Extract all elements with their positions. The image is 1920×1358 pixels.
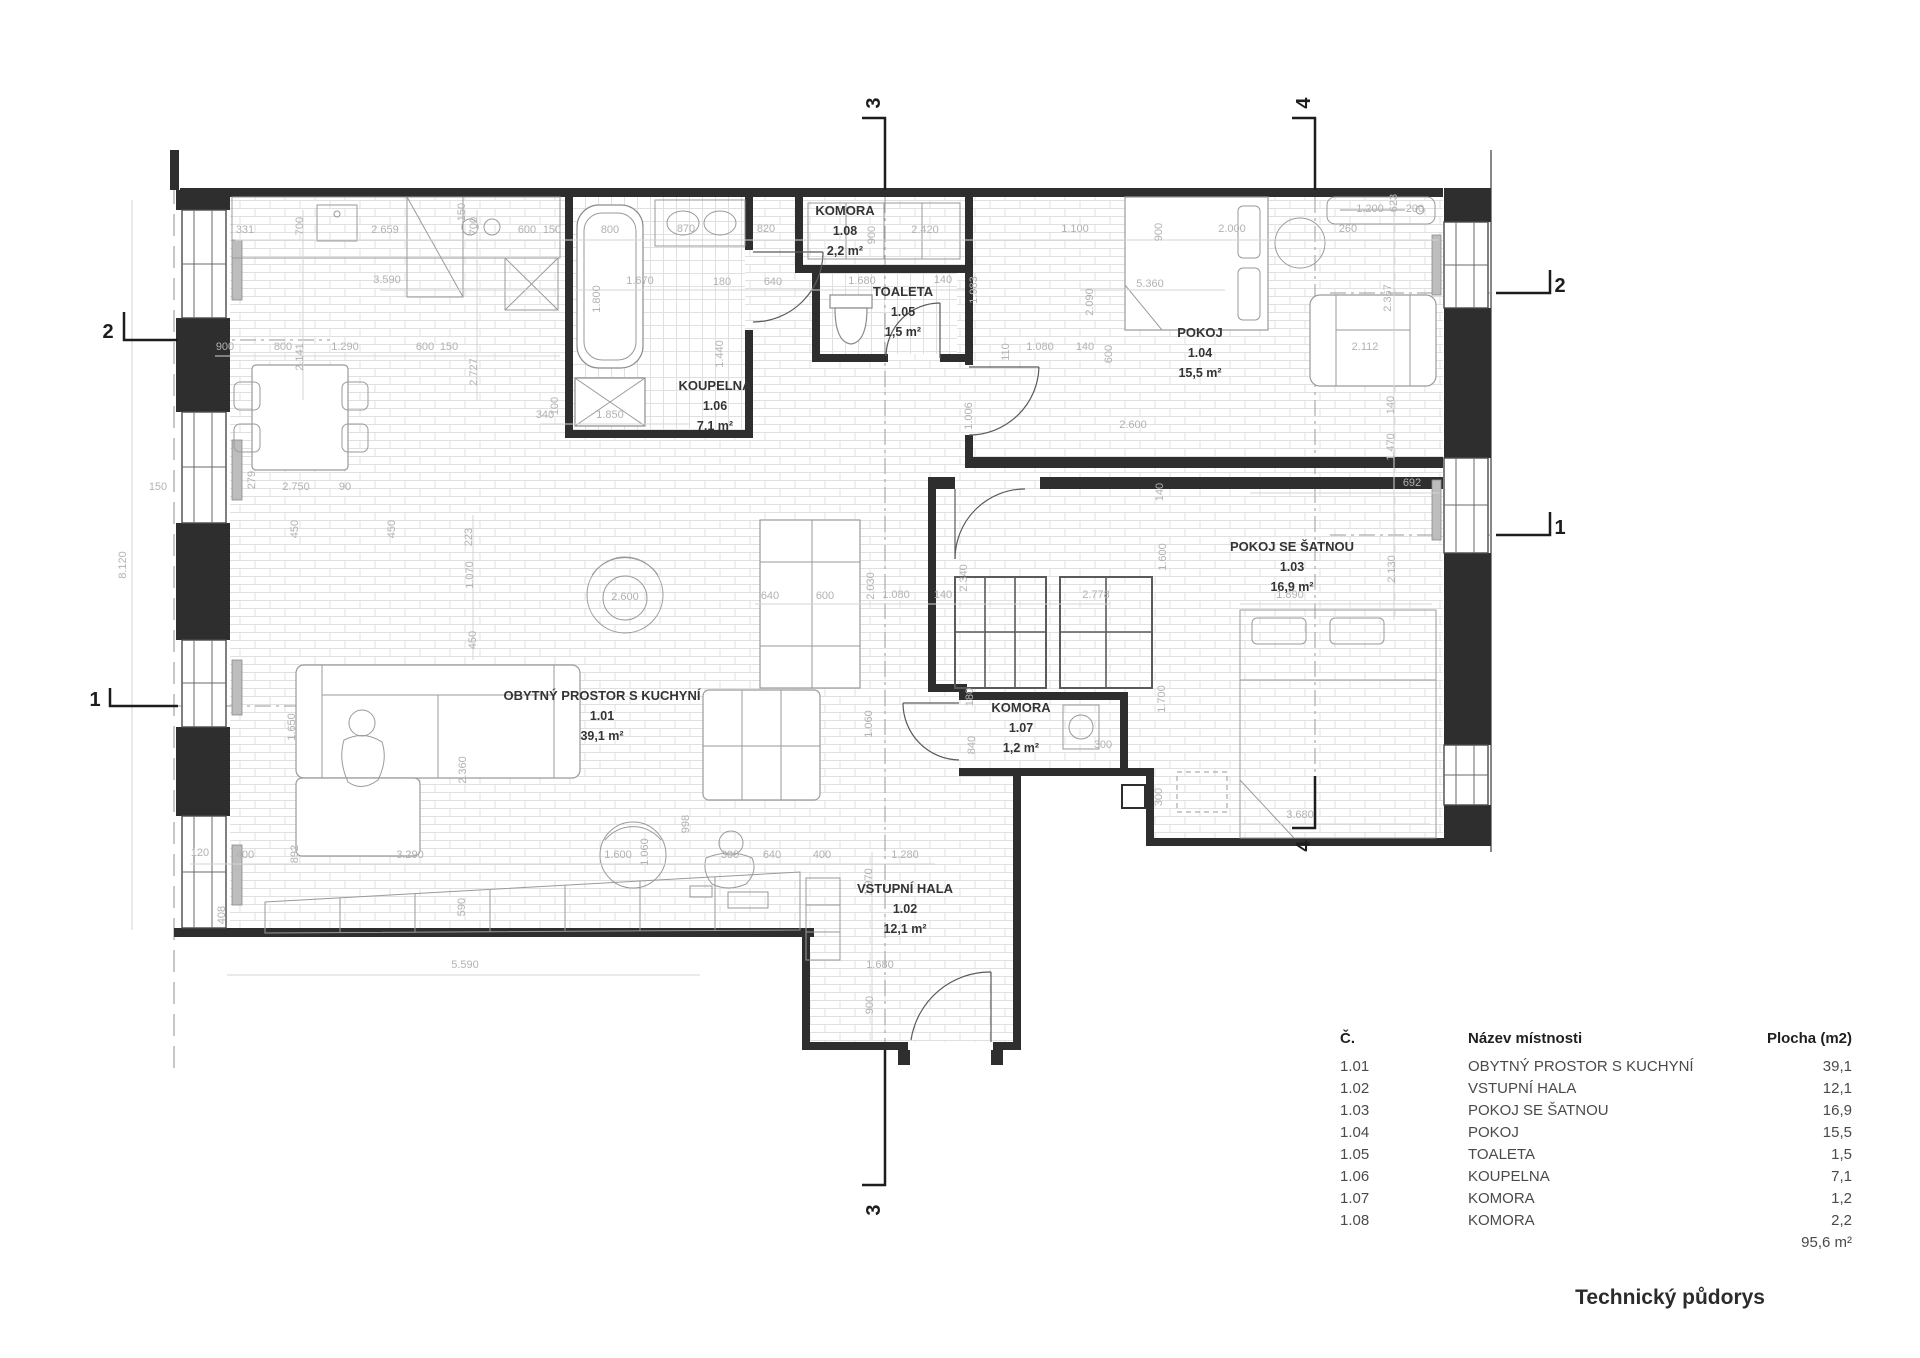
dimension-label: 600 [1103, 345, 1115, 363]
room-label-number: 1.08 [833, 224, 857, 238]
legend-row: 1.05TOALETA1,5 [1340, 1143, 1852, 1165]
dimension-label: 1.700 [1156, 685, 1168, 713]
window-right-3 [1444, 745, 1488, 805]
room-label-name: KOMORA [815, 203, 875, 218]
section-marker-label: 2 [1554, 275, 1565, 297]
dimension-label: 2.778 [1082, 589, 1110, 601]
dimension-label: 150 [440, 341, 458, 353]
dimension-label: 1.070 [464, 561, 476, 589]
dimension-label: 600 [518, 224, 536, 236]
dimension-label: 840 [966, 736, 978, 754]
legend-cell-area: 39,1 [1747, 1055, 1852, 1077]
legend-total-area: 95,6 m² [1747, 1231, 1852, 1253]
dimension-label: 2.600 [1119, 419, 1147, 431]
dimension-label: 260 [1339, 223, 1357, 235]
dimension-label: 1.100 [1061, 223, 1089, 235]
legend-cell-area: 1,5 [1747, 1143, 1852, 1165]
legend-cell-num: 1.06 [1340, 1165, 1468, 1187]
dimension-label: 5.590 [451, 959, 479, 971]
dimension-label: 3.590 [373, 274, 401, 286]
window-right-1 [1444, 222, 1488, 308]
dimension-label: 600 [816, 590, 834, 602]
dimension-label: 700 [294, 217, 306, 235]
dimension-label: 590 [456, 898, 468, 916]
dimension-label: 900 [216, 341, 234, 353]
window-left-2 [182, 412, 226, 523]
room-label-number: 1.01 [590, 709, 614, 723]
legend-cell-num: 1.03 [1340, 1099, 1468, 1121]
dimension-label: 800 [601, 224, 619, 236]
room-label-number: 1.05 [891, 305, 915, 319]
legend-cell-area: 16,9 [1747, 1099, 1852, 1121]
dimension-label: 1.800 [591, 285, 603, 313]
dimension-label: 8.120 [117, 551, 129, 579]
room-label-area: 39,1 m² [580, 729, 623, 743]
room-label-name: KOMORA [991, 700, 1051, 715]
dimension-label: 140 [1154, 483, 1166, 501]
legend-row: 1.06KOUPELNA7,1 [1340, 1165, 1852, 1187]
dimension-label: 150 [149, 481, 167, 493]
room-label-number: 1.04 [1188, 346, 1212, 360]
legend-row: 1.08KOMORA2,2 [1340, 1209, 1852, 1231]
room-label-name: OBYTNÝ PROSTOR S KUCHYNÍ [504, 688, 701, 703]
dimension-label: 400 [236, 849, 254, 861]
room-label-name: POKOJ [1177, 325, 1223, 340]
dimension-label: 100 [549, 397, 561, 415]
dimension-label: 2.659 [371, 224, 399, 236]
radiator [232, 240, 242, 300]
dimension-label: 998 [680, 815, 692, 833]
room-label-area: 2,2 m² [827, 244, 863, 258]
dimension-label: 2.030 [865, 572, 877, 600]
radiator [1432, 480, 1441, 540]
legend-cell-num: 1.04 [1340, 1121, 1468, 1143]
dimension-label: 450 [386, 520, 398, 538]
dimension-label: 180 [964, 688, 976, 706]
legend-header-num: Č. [1340, 1030, 1468, 1055]
dimension-label: 400 [813, 849, 831, 861]
legend-cell-name: POKOJ [1468, 1121, 1747, 1143]
dimension-label: 2.000 [1218, 223, 1246, 235]
wardrobe [703, 690, 820, 800]
dimension-label: 1.680 [848, 275, 876, 287]
legend-cell-name: KOMORA [1468, 1209, 1747, 1231]
legend-cell-num: 1.05 [1340, 1143, 1468, 1165]
dimension-label: 2.340 [958, 564, 970, 592]
dimension-label: 1.600 [1157, 543, 1169, 571]
dimension-label: 5.360 [1136, 278, 1164, 290]
dimension-label: 200 [1406, 203, 1424, 215]
dimension-label: 1.006 [963, 402, 975, 430]
legend-cell-num: 1.07 [1340, 1187, 1468, 1209]
room-label-name: TOALETA [873, 284, 934, 299]
legend-row: 1.07KOMORA1,2 [1340, 1187, 1852, 1209]
legend-cell-area: 7,1 [1747, 1165, 1852, 1187]
dimension-label: 1.850 [596, 409, 624, 421]
dimension-label: 279 [246, 471, 258, 489]
dimension-label: 1.060 [639, 838, 651, 866]
dimension-label: 90 [339, 481, 351, 493]
legend-table: Č. Název místnosti Plocha (m2) 1.01OBYTN… [1340, 1030, 1852, 1253]
radiator [1432, 235, 1441, 295]
room-label-name: POKOJ SE ŠATNOU [1230, 539, 1354, 554]
room-label-number: 1.03 [1280, 560, 1304, 574]
legend-cell-num: 1.01 [1340, 1055, 1468, 1077]
section-marker-label: 3 [863, 97, 885, 108]
dimension-label: 300 [1094, 739, 1112, 751]
legend-row: 1.03POKOJ SE ŠATNOU16,9 [1340, 1099, 1852, 1121]
dimension-label: 2.141 [294, 343, 306, 371]
dimension-label: 1.470 [1385, 433, 1397, 461]
dimension-label: 1.600 [604, 849, 632, 861]
dimension-label: 140 [1076, 341, 1094, 353]
dimension-label: 2.112 [1352, 341, 1379, 353]
dimension-label: 1.200 [1356, 203, 1384, 215]
room-label-area: 1,2 m² [1003, 741, 1039, 755]
legend-row: 1.01OBYTNÝ PROSTOR S KUCHYNÍ39,1 [1340, 1055, 1852, 1077]
room-label-number: 1.06 [703, 399, 727, 413]
dimension-label: 1.983 [968, 276, 980, 304]
dining-table [234, 365, 368, 470]
dimension-label: 1.290 [331, 341, 359, 353]
section-marker-label: 2 [102, 321, 113, 343]
dimension-label: 2.750 [282, 481, 310, 493]
dimension-label: 870 [677, 223, 695, 235]
radiator [232, 440, 242, 500]
dimension-label: 1.280 [891, 849, 919, 861]
section-marker-label: 4 [1293, 840, 1315, 852]
dimension-label: 140 [934, 274, 952, 286]
dimension-label: 1.670 [626, 275, 654, 287]
dimension-label: 892 [289, 845, 301, 863]
dimension-label: 640 [764, 276, 782, 288]
dimension-label: 150 [543, 224, 561, 236]
dimension-label: 408 [216, 906, 228, 924]
legend-cell-area: 12,1 [1747, 1077, 1852, 1099]
section-marker-label: 1 [89, 689, 100, 711]
legend-row: 1.04POKOJ15,5 [1340, 1121, 1852, 1143]
section-marker-label: 4 [1293, 97, 1315, 109]
dimension-label: 1.080 [1026, 341, 1054, 353]
dimension-label: 2.727 [468, 358, 480, 386]
dimension-label: 820 [757, 223, 775, 235]
dimension-label: 900 [1153, 223, 1165, 241]
dimension-label: 110 [1000, 343, 1012, 361]
section-marker-label: 1 [1554, 517, 1565, 539]
dimension-label: 300 [721, 849, 739, 861]
room-label-area: 15,5 m² [1178, 366, 1221, 380]
dimension-label: 900 [864, 996, 876, 1014]
room-label-area: 16,9 m² [1270, 580, 1313, 594]
legend-cell-area: 1,2 [1747, 1187, 1852, 1209]
dimension-label: 2.600 [611, 591, 639, 603]
window-left-1 [182, 210, 226, 318]
dimension-label: 150 [456, 203, 468, 221]
dimension-label: 2.420 [911, 224, 939, 236]
legend-cell-num: 1.02 [1340, 1077, 1468, 1099]
radiator [232, 660, 242, 715]
dimension-label: 640 [763, 849, 781, 861]
dimension-label: 2.360 [457, 756, 469, 784]
room-label-area: 7,1 m² [697, 419, 733, 433]
dimension-label: 1.680 [866, 959, 894, 971]
window-left-3 [182, 640, 226, 727]
room-label-area: 1,5 m² [885, 325, 921, 339]
dimension-label: 640 [761, 590, 779, 602]
room-label-area: 12,1 m² [883, 922, 926, 936]
dimension-label: 2.090 [1084, 288, 1096, 316]
legend-cell-name: TOALETA [1468, 1143, 1747, 1165]
bed-single [1125, 197, 1268, 330]
floor-plan-page: 3317002.6597006001508008708209002.4201.1… [0, 0, 1920, 1358]
dimension-label: 2.130 [1386, 555, 1398, 583]
room-label-number: 1.02 [893, 902, 917, 916]
legend-cell-num: 1.08 [1340, 1209, 1468, 1231]
dimension-label: 450 [467, 631, 479, 649]
dimension-label: 623 [1388, 194, 1400, 212]
legend-row: 1.02VSTUPNÍ HALA12,1 [1340, 1077, 1852, 1099]
room-label-number: 1.07 [1009, 721, 1033, 735]
dimension-label: 700 [468, 217, 480, 235]
dimension-label: 1.650 [286, 713, 298, 741]
dimension-label: 140 [934, 589, 952, 601]
dimension-label: 800 [274, 341, 292, 353]
legend-cell-area: 2,2 [1747, 1209, 1852, 1231]
dimension-label: 450 [289, 520, 301, 538]
dimension-label: 1.060 [863, 710, 875, 738]
window-right-2 [1444, 458, 1488, 553]
dimension-label: 300 [1153, 788, 1165, 806]
dimension-label: 180 [713, 276, 731, 288]
legend-cell-name: KOMORA [1468, 1187, 1747, 1209]
dimension-label: 600 [416, 341, 434, 353]
legend-cell-name: OBYTNÝ PROSTOR S KUCHYNÍ [1468, 1055, 1747, 1077]
legend-cell-name: POKOJ SE ŠATNOU [1468, 1099, 1747, 1121]
room-label-name: KOUPELNA [679, 378, 753, 393]
dimension-label: 1.080 [882, 589, 910, 601]
legend-header-area: Plocha (m2) [1747, 1030, 1852, 1055]
dimension-label: 331 [236, 224, 254, 236]
dimension-label: 223 [463, 528, 475, 546]
legend-header-name: Název místnosti [1468, 1030, 1747, 1055]
dimension-label: 2.367 [1382, 284, 1394, 312]
legend-cell-area: 15,5 [1747, 1121, 1852, 1143]
dimension-label: 3.290 [396, 849, 424, 861]
drawing-title: Technický půdorys [1500, 1286, 1765, 1310]
dimension-label: 3.680 [1286, 809, 1314, 821]
dimension-label: 1.440 [714, 340, 726, 368]
dimension-label: 140 [1385, 396, 1397, 414]
legend-cell-name: VSTUPNÍ HALA [1468, 1077, 1747, 1099]
dimension-label: 900 [866, 226, 878, 244]
section-marker-label: 3 [863, 1204, 885, 1215]
room-label-name: VSTUPNÍ HALA [857, 881, 954, 896]
dimension-label: 120 [191, 847, 209, 859]
legend-cell-name: KOUPELNA [1468, 1165, 1747, 1187]
dimension-label: 692 [1403, 477, 1421, 489]
